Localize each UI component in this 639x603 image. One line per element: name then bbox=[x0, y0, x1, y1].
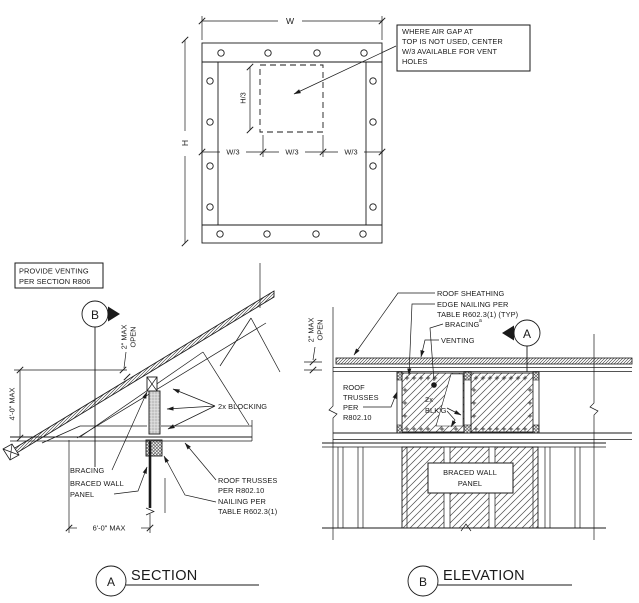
venting-note-line-2: PER SECTION R806 bbox=[19, 277, 90, 286]
label-2x-blocking: 2x BLOCKING bbox=[218, 402, 267, 411]
venting-note: PROVIDE VENTING PER SECTION R806 bbox=[15, 263, 103, 288]
label-elev-trusses-3: PER bbox=[343, 403, 359, 412]
label-elev-trusses-4: R802.10 bbox=[343, 413, 372, 422]
label-nailing-2: TABLE R602.3(1) bbox=[218, 507, 277, 516]
dim-2max-label-2: OPEN bbox=[129, 327, 138, 348]
left-break-line bbox=[329, 307, 337, 540]
label-bracing-elevation: BRACING bbox=[445, 320, 480, 329]
title-section-text: SECTION bbox=[131, 568, 198, 584]
construction-detail-figure: W H H/3 W/3 W/3 W/3 bbox=[0, 0, 639, 603]
label-nailing-1: NAILING PER bbox=[218, 497, 266, 506]
dim-w-label: W bbox=[286, 16, 295, 26]
drawing-page: W H H/3 W/3 W/3 W/3 bbox=[0, 0, 639, 603]
elev-dim-2max-1: 2" MAX bbox=[307, 318, 316, 343]
dim-h3: H/3 bbox=[239, 64, 254, 133]
label-roof-sheathing: ROOF SHEATHING bbox=[437, 289, 505, 298]
callout-line-2: TOP IS NOT USED, CENTER bbox=[402, 37, 503, 46]
plan-view: W H H/3 W/3 W/3 W/3 bbox=[180, 16, 530, 246]
blocking-2x-upper bbox=[149, 391, 160, 434]
truss-top-chord bbox=[77, 323, 266, 438]
title-elevation-marker: B bbox=[419, 575, 427, 589]
label-bwp-elev-2: PANEL bbox=[458, 479, 482, 488]
plan-panel-outline bbox=[202, 43, 382, 243]
dim-4ft-label: 4'-0" MAX bbox=[8, 388, 17, 421]
callout-leader-arrow bbox=[294, 46, 396, 94]
dim-h: H bbox=[180, 37, 190, 246]
label-2x-blkg-1: 2x bbox=[425, 395, 433, 404]
label-edge-nailing-1: EDGE NAILING PER bbox=[437, 300, 508, 309]
drawing-titles: A SECTION B ELEVATION bbox=[96, 566, 572, 596]
wall-break-squiggle bbox=[146, 508, 154, 515]
vent-holes bbox=[207, 50, 376, 237]
title-elevation: B ELEVATION bbox=[408, 566, 572, 596]
label-edge-nailing-2: TABLE R602.3(1) (TYP) bbox=[437, 310, 518, 319]
plan-callout: WHERE AIR GAP AT TOP IS NOT USED, CENTER… bbox=[294, 25, 530, 94]
dim-w: W bbox=[199, 16, 385, 40]
title-section: A SECTION bbox=[96, 566, 259, 596]
label-roof-trusses-2: PER R802.10 bbox=[218, 486, 264, 495]
dim-w3-label-3: W/3 bbox=[344, 148, 357, 157]
dim-2in-max-open-section: 2" MAX OPEN bbox=[120, 325, 138, 381]
elevation-linework bbox=[322, 307, 632, 540]
bracing-footnote-mark: a bbox=[479, 318, 482, 324]
elevation-view: A 2" MAX OPEN ROOF SHEATHING EDGE NAILIN… bbox=[304, 289, 632, 540]
dim-w3-row: W/3 W/3 W/3 bbox=[199, 135, 385, 157]
cut-marker-b-letter: B bbox=[91, 308, 99, 322]
venting-note-line-1: PROVIDE VENTING bbox=[19, 267, 89, 276]
dim-4ft-max: 4'-0" MAX bbox=[8, 367, 128, 441]
dim-h-label: H bbox=[180, 140, 190, 146]
callout-line-1: WHERE AIR GAP AT bbox=[402, 27, 474, 36]
cut-direction-triangle-a bbox=[502, 326, 514, 341]
right-break-line bbox=[590, 334, 598, 540]
label-braced-wall-panel-2: PANEL bbox=[70, 490, 94, 499]
center-vent-zone-dashed bbox=[260, 65, 323, 132]
label-bwp-elev-1: BRACED WALL bbox=[443, 468, 497, 477]
label-elev-trusses-1: ROOF bbox=[343, 383, 365, 392]
dim-2in-max-open-elevation: 2" MAX OPEN bbox=[304, 318, 325, 374]
elev-dim-2max-2: OPEN bbox=[316, 320, 325, 341]
label-bracing-section: BRACING bbox=[70, 466, 105, 475]
callout-line-4: HOLES bbox=[402, 57, 428, 66]
section-labels: 2x BLOCKING BRACING BRACED WALL PANEL RO… bbox=[70, 389, 277, 516]
label-elev-trusses-2: TRUSSES bbox=[343, 393, 379, 402]
roof-sheathing-sloped bbox=[10, 291, 274, 457]
dim-w3-label-1: W/3 bbox=[226, 148, 239, 157]
label-2x-blkg-2: BLK'G bbox=[425, 406, 447, 415]
dim-w3-label-2: W/3 bbox=[285, 148, 298, 157]
section-view: PROVIDE VENTING PER SECTION R806 B bbox=[3, 263, 280, 533]
cut-marker-a-letter: A bbox=[523, 327, 531, 341]
truss-webs bbox=[42, 318, 280, 443]
blocking-at-plate bbox=[146, 440, 162, 456]
roof-sheathing-elevation bbox=[336, 358, 632, 364]
label-venting: VENTING bbox=[441, 336, 475, 345]
dim-6ft-label: 6'-0" MAX bbox=[93, 524, 126, 533]
dim-h3-label: H/3 bbox=[239, 92, 248, 104]
title-section-marker: A bbox=[107, 575, 115, 589]
blocking-bay-right bbox=[471, 373, 534, 432]
dim-2max-label-1: 2" MAX bbox=[120, 325, 129, 350]
bracing-leader-dot bbox=[431, 382, 437, 388]
label-braced-wall-panel-1: BRACED WALL bbox=[70, 479, 124, 488]
section-cut-marker-b: B bbox=[82, 301, 120, 467]
cut-direction-triangle bbox=[108, 307, 120, 322]
title-elevation-text: ELEVATION bbox=[443, 568, 525, 584]
callout-line-3: W/3 AVAILABLE FOR VENT bbox=[402, 47, 498, 56]
label-roof-trusses-1: ROOF TRUSSES bbox=[218, 476, 277, 485]
